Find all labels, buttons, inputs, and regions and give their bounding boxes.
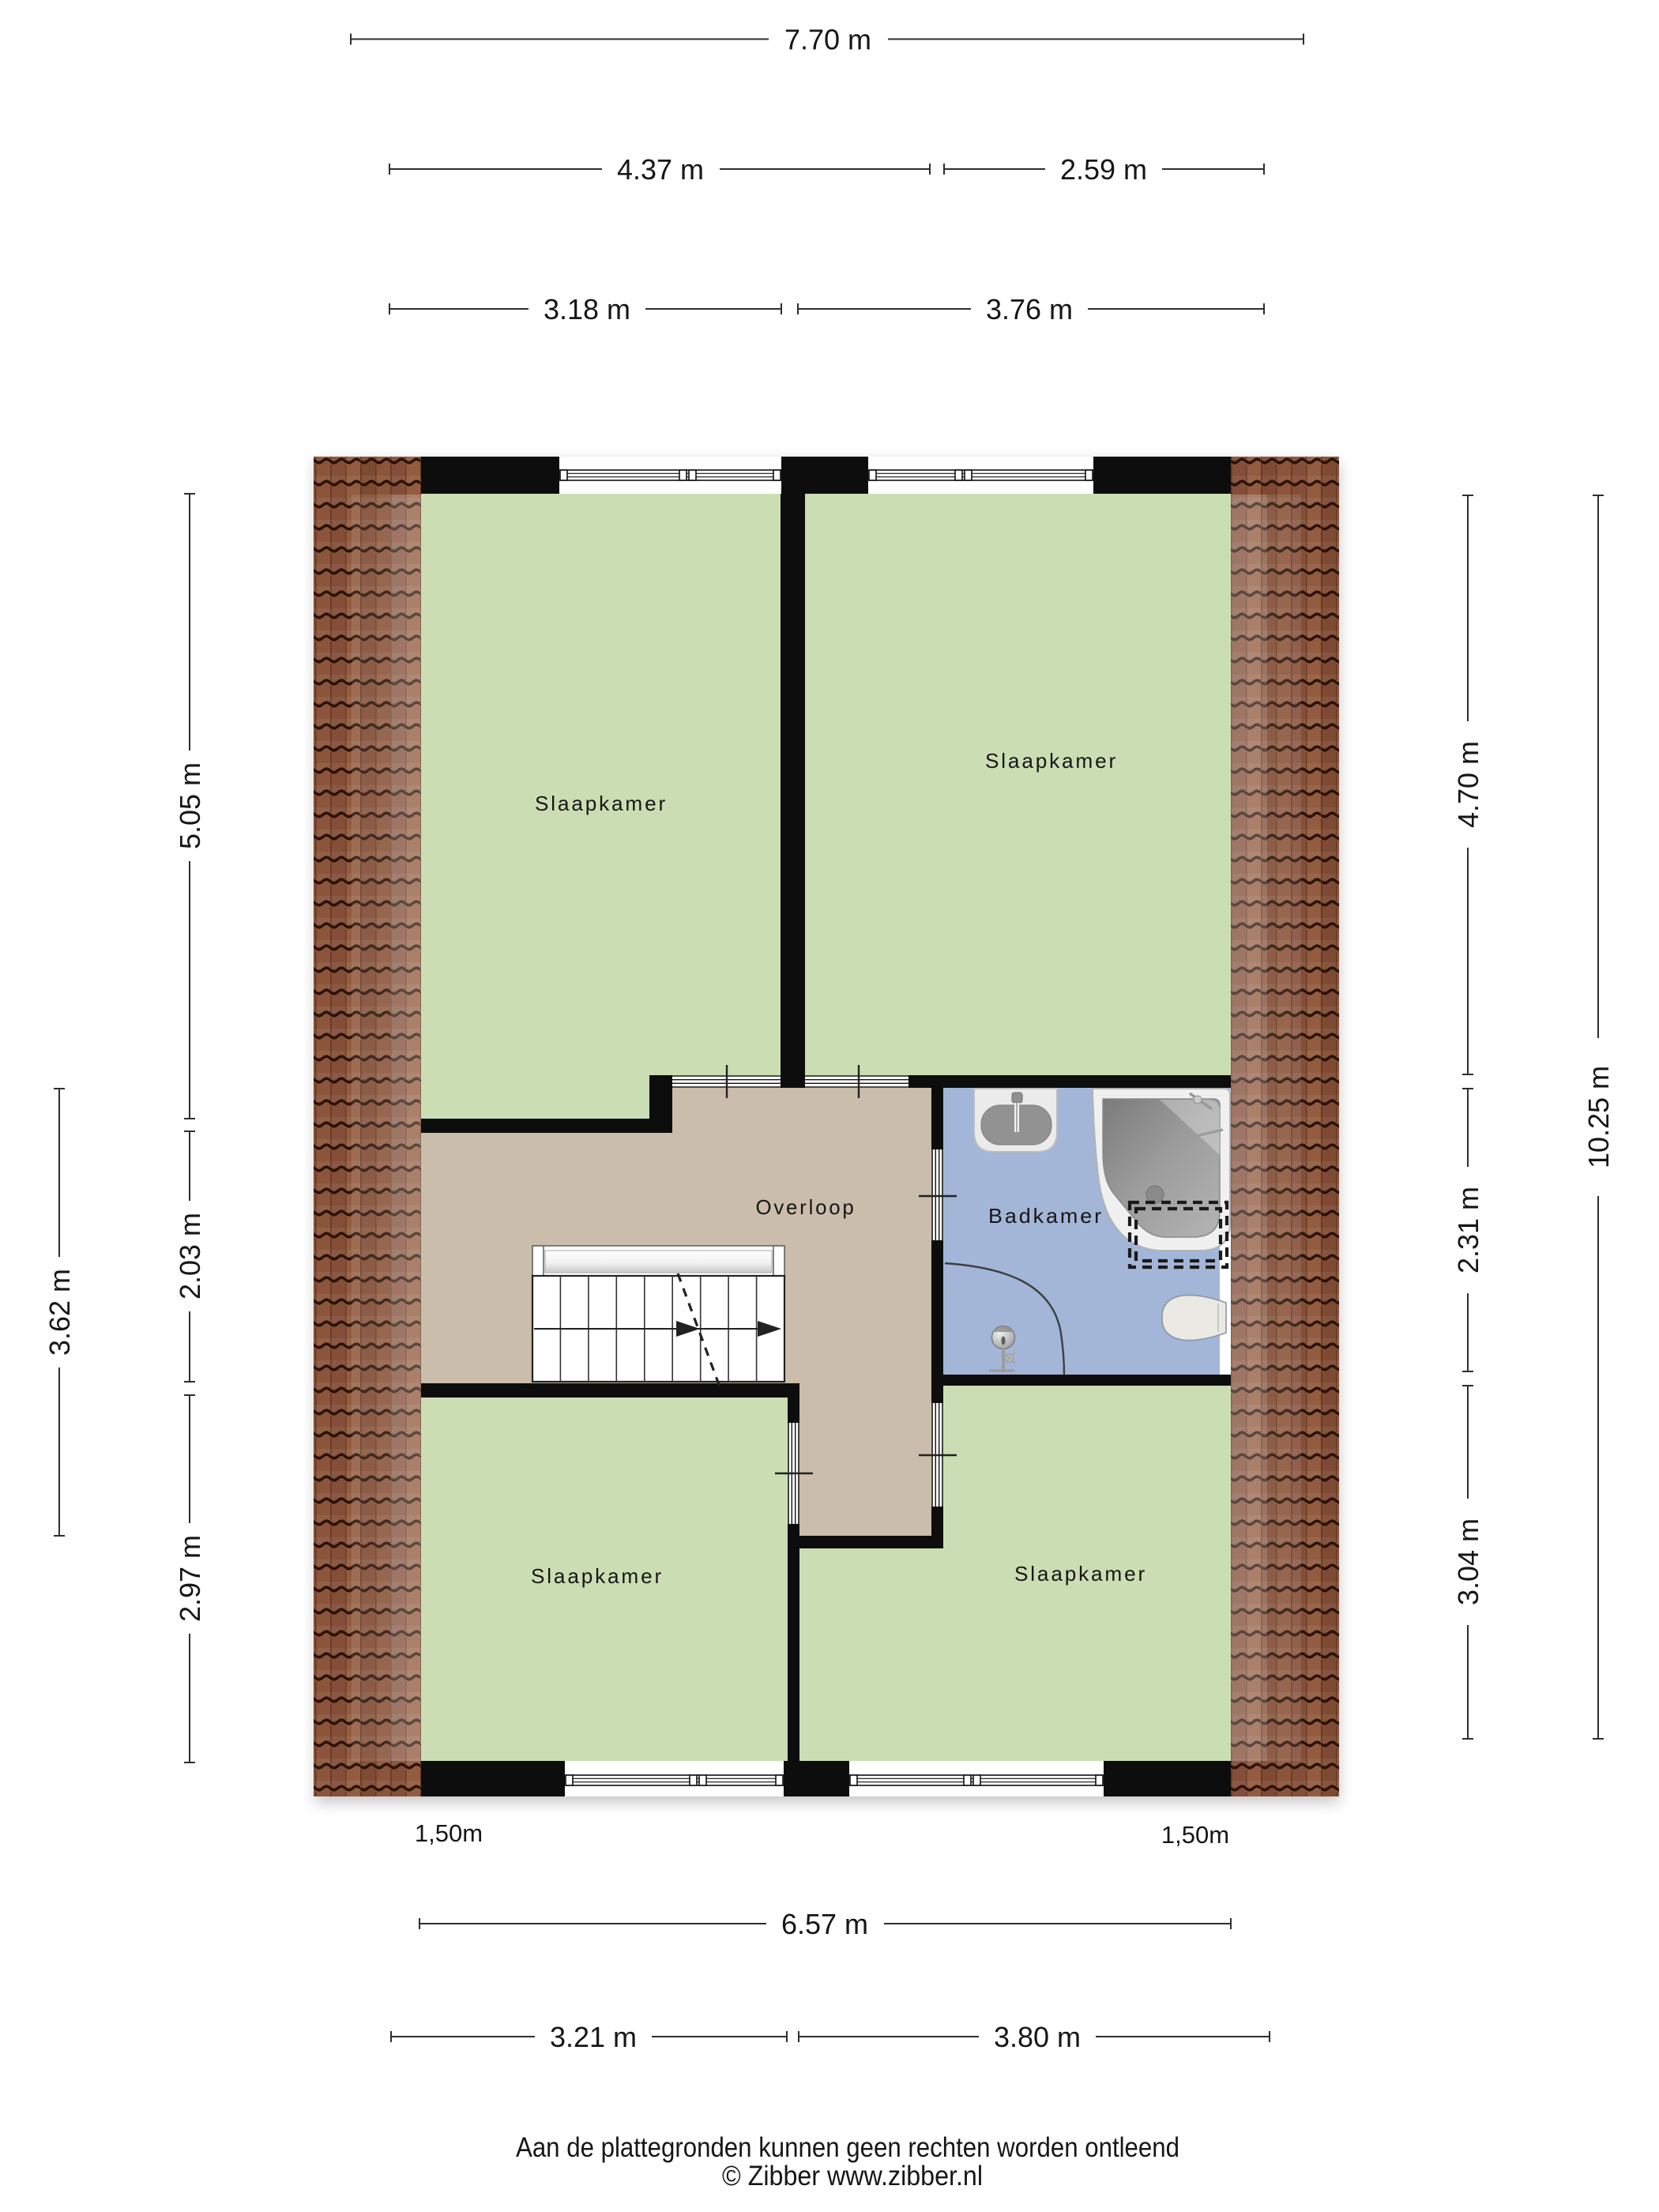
svg-text:3.76 m: 3.76 m <box>986 293 1073 325</box>
svg-text:3.18 m: 3.18 m <box>544 293 630 325</box>
svg-text:Slaapkamer: Slaapkamer <box>535 792 668 815</box>
svg-text:3.62 m: 3.62 m <box>43 1269 76 1356</box>
svg-text:2.31 m: 2.31 m <box>1452 1187 1484 1273</box>
svg-text:Slaapkamer: Slaapkamer <box>531 1564 664 1588</box>
svg-text:3.21 m: 3.21 m <box>550 2021 637 2053</box>
svg-text:Aan de plattegronden kunnen ge: Aan de plattegronden kunnen geen rechten… <box>516 2132 1179 2163</box>
svg-text:2.03 m: 2.03 m <box>174 1213 206 1300</box>
svg-text:3.80 m: 3.80 m <box>994 2021 1081 2053</box>
svg-text:5.05 m: 5.05 m <box>174 762 206 849</box>
svg-text:1,50m: 1,50m <box>1161 1821 1229 1849</box>
svg-text:2.97 m: 2.97 m <box>174 1535 206 1622</box>
svg-text:2.59 m: 2.59 m <box>1060 153 1147 186</box>
svg-text:7.70 m: 7.70 m <box>784 24 871 56</box>
svg-text:© Zibber www.zibber.nl: © Zibber www.zibber.nl <box>722 2161 983 2191</box>
svg-text:10.25 m: 10.25 m <box>1582 1066 1615 1168</box>
svg-text:Badkamer: Badkamer <box>988 1204 1104 1228</box>
svg-text:3.04 m: 3.04 m <box>1452 1518 1484 1605</box>
svg-text:6.57 m: 6.57 m <box>781 1908 868 1940</box>
svg-text:4.70 m: 4.70 m <box>1452 741 1484 828</box>
svg-text:1,50m: 1,50m <box>415 1819 483 1847</box>
svg-text:4.37 m: 4.37 m <box>617 153 704 186</box>
svg-text:Overloop: Overloop <box>756 1195 856 1219</box>
svg-text:Slaapkamer: Slaapkamer <box>985 749 1118 773</box>
svg-text:Slaapkamer: Slaapkamer <box>1014 1562 1147 1586</box>
